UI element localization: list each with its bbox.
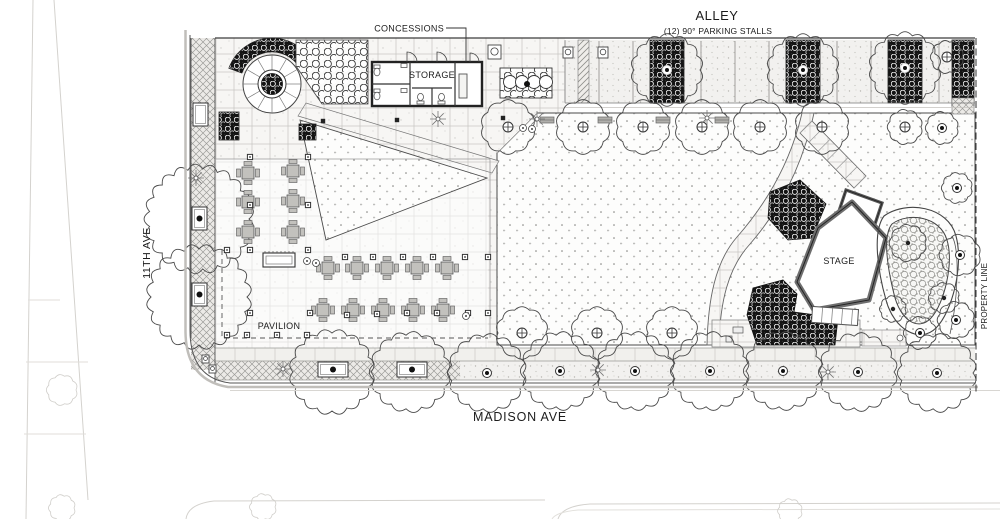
serving-table [263,251,295,267]
light-pole-icon [529,111,545,127]
pavilion-column-icon [247,247,252,252]
bench-icon [540,117,554,123]
trash-receptacle-icon [463,313,470,320]
eleventh-ave-label: 11TH AVE [141,227,153,278]
bollard-icon [395,118,399,122]
madison-ave-label: MADISON AVE [473,410,567,424]
bollard-icon [501,116,505,120]
parking-stalls-label: (12) 90° PARKING STALLS [664,26,772,36]
service-counter [459,74,467,98]
trash-receptacle-icon [520,125,527,132]
utility-box-icon [202,355,209,363]
pavilion-column-icon [224,332,229,337]
pavilion-column-icon [244,332,249,337]
pavilion-column-icon [247,154,252,159]
pavilion-column-icon [400,254,405,259]
west-furnishing-strip [191,38,215,370]
pavilion-label: PAVILION [258,321,301,331]
alley-label: ALLEY [696,8,739,23]
storage-label: STORAGE [409,70,455,80]
concessions-label: CONCESSIONS [374,24,444,34]
tree-planter-icon [318,362,348,377]
pavilion-column-icon [305,154,310,159]
light-pole-icon [430,111,446,127]
pavilion-column-icon [374,311,379,316]
tree-planter-icon [192,283,207,306]
property-line-label: PROPERTY LINE [980,263,989,329]
corner-planter [299,124,316,140]
bench-icon [715,117,729,123]
trash-receptacle-icon [897,335,903,341]
pavilion-column-icon [342,254,347,259]
pavilion-column-icon [274,332,279,337]
hatched-strip [578,40,589,103]
pavilion-column-icon [370,254,375,259]
light-pole-icon [699,110,715,126]
pavilion-column-icon [305,202,310,207]
trash-receptacle-icon [313,260,320,267]
stage-steps [811,306,858,325]
light-pole-icon [275,361,291,377]
utility-box-icon [488,45,501,59]
edge-groundcover [952,98,974,114]
pavilion-column-icon [485,254,490,259]
edge-planting-strip [952,40,974,106]
tree-planter-icon [192,207,207,230]
pavilion-column-icon [247,202,252,207]
trash-receptacle-icon [529,126,536,133]
site-plan-sheet: ALLEY (12) 90° PARKING STALLS CONCESSION… [0,0,1000,519]
pavilion-column-icon [305,247,310,252]
fountain-planting [262,74,283,95]
pavilion-column-icon [462,254,467,259]
pavilion-column-icon [304,332,309,337]
equipment-pad [726,336,732,342]
utility-box-icon [598,47,608,58]
site-plan-drawing: ALLEY (12) 90° PARKING STALLS CONCESSION… [0,0,1000,519]
utility-box-icon [209,365,216,373]
pavilion-column-icon [307,310,312,315]
light-pole-icon [820,364,836,380]
trash-receptacle-icon [304,258,311,265]
pavilion-column-icon [224,247,229,252]
stage-label: STAGE [823,256,854,266]
equipment-pad [733,327,743,333]
pavilion-column-icon [434,310,439,315]
pavilion-column-icon [404,310,409,315]
pavilion-column-icon [430,254,435,259]
bench-icon [598,117,612,123]
bench-icon [656,117,670,123]
pavilion-column-icon [247,310,252,315]
tree-planter-icon [193,103,208,126]
south-walk [215,338,498,348]
tree-planter-icon [397,362,427,377]
pavilion-column-icon [344,312,349,317]
corner-planter [219,112,239,140]
utility-box-icon [563,47,573,58]
light-pole-icon [590,362,606,378]
pavilion-column-icon [485,310,490,315]
bollard-icon [321,119,325,123]
